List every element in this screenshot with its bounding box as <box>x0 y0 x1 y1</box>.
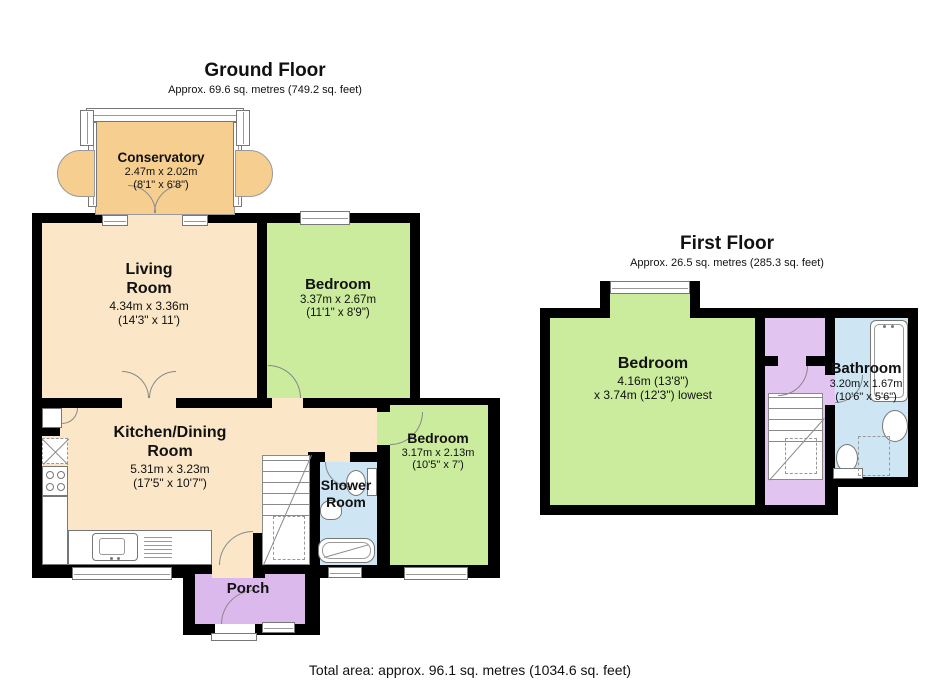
kitchen-cupboard <box>42 408 62 428</box>
window <box>80 110 94 146</box>
room-name: Bedroom <box>594 355 712 374</box>
room-bedroom-3 <box>550 318 755 505</box>
wall <box>377 398 390 412</box>
room-name: Bathroom <box>830 360 903 378</box>
hob-burner <box>46 483 54 491</box>
room-size-m: 3.20m x 1.67m <box>830 378 903 391</box>
window <box>328 567 362 578</box>
kitchen-drainer <box>144 537 172 558</box>
room-name: Room <box>321 494 372 511</box>
bathroom-label: Bathroom 3.20m x 1.67m (10'6" x 5'6") <box>830 360 903 404</box>
wall <box>806 356 825 366</box>
shower-area-outline <box>858 436 890 476</box>
window <box>262 622 295 633</box>
window <box>300 211 350 225</box>
room-name: Room <box>114 443 227 462</box>
doorway-living-kitchen <box>122 398 176 408</box>
sink-tap <box>117 557 120 560</box>
hob-burner <box>57 471 65 479</box>
sink-basin <box>99 538 125 555</box>
kitchen-sink <box>92 533 138 561</box>
window <box>182 215 208 226</box>
kitchen-hob <box>42 466 68 496</box>
stair-void-outline <box>273 516 305 560</box>
conservatory-label: Conservatory 2.47m x 2.02m (8'1" x 6'8") <box>117 150 204 192</box>
room-size-m: 3.17m x 2.13m <box>402 447 475 460</box>
kitchen-unit-cross <box>42 438 68 464</box>
porch-label: Porch <box>227 580 270 598</box>
ground-floor-subtitle: Approx. 69.6 sq. metres (749.2 sq. feet) <box>168 84 362 97</box>
bathtub-icon <box>318 538 375 563</box>
wall <box>42 428 60 436</box>
conservatory-bay-left <box>57 150 95 197</box>
living-room-label: Living Room 4.34m x 3.36m (14'3" x 11') <box>109 261 188 327</box>
room-size-ft: (8'1" x 6'8") <box>117 179 204 192</box>
room-name: Shower <box>321 477 372 494</box>
doorway-bedroom-2 <box>377 412 390 445</box>
first-floor-title: First Floor <box>680 233 774 255</box>
staircase-first <box>768 393 823 480</box>
doorway-porch <box>212 565 253 578</box>
window <box>610 281 690 294</box>
room-size-m: 4.34m x 3.36m <box>109 299 188 313</box>
room-name: Conservatory <box>117 150 204 166</box>
room-size-ft: (11'1" x 8'9") <box>300 307 376 321</box>
bath-tap <box>891 325 894 328</box>
room-name: Kitchen/Dining <box>114 424 227 443</box>
wall <box>377 445 390 565</box>
room-name: Living <box>109 261 188 280</box>
sink-tap <box>110 557 113 560</box>
room-size-ft: (10'6" x 5'6") <box>830 391 903 404</box>
room-size-line2: x 3.74m (12'3") lowest <box>594 388 712 402</box>
room-size-ft: (10'5" x 7') <box>402 459 475 472</box>
conservatory-bay-right <box>235 150 273 197</box>
room-bedroom-3-bay <box>610 293 690 320</box>
shower-room-label: Shower Room <box>321 477 372 510</box>
bedroom3-label: Bedroom 4.16m (13'8") x 3.74m (12'3") lo… <box>594 355 712 402</box>
total-area-text: Total area: approx. 96.1 sq. metres (103… <box>309 662 631 679</box>
room-size-m: 3.37m x 2.67m <box>300 294 376 308</box>
doorway-bedroom-1 <box>272 398 303 408</box>
kitchen-label: Kitchen/Dining Room 5.31m x 3.23m (17'5"… <box>114 424 227 490</box>
ground-floor-title: Ground Floor <box>204 60 325 82</box>
hob-burner <box>46 471 54 479</box>
room-name: Bedroom <box>402 430 475 447</box>
bedroom2-label: Bedroom 3.17m x 2.13m (10'5" x 7') <box>402 430 475 472</box>
bath-tap <box>883 325 886 328</box>
room-size-line1: 4.16m (13'8") <box>594 374 712 388</box>
kitchen-counter-bottom <box>68 530 212 565</box>
kitchen-counter-left <box>42 496 68 565</box>
window <box>102 215 128 226</box>
staircase-ground <box>262 455 310 565</box>
room-name: Bedroom <box>300 276 376 294</box>
room-name: Room <box>109 280 188 299</box>
room-size-ft: (14'3" x 11') <box>109 313 188 327</box>
wall <box>755 356 778 366</box>
hob-burner <box>57 483 65 491</box>
window <box>72 567 172 580</box>
room-size-m: 2.47m x 2.02m <box>117 166 204 179</box>
floorplan-canvas: Ground Floor Approx. 69.6 sq. metres (74… <box>0 0 950 690</box>
room-size-ft: (17'5" x 10'7") <box>114 476 227 490</box>
bedroom1-label: Bedroom 3.37m x 2.67m (11'1" x 8'9") <box>300 276 376 321</box>
window <box>86 108 244 122</box>
front-door-step <box>211 633 257 641</box>
room-size-m: 5.31m x 3.23m <box>114 462 227 476</box>
first-floor-subtitle: Approx. 26.5 sq. metres (285.3 sq. feet) <box>630 257 824 270</box>
window <box>236 110 250 146</box>
window <box>404 567 468 580</box>
